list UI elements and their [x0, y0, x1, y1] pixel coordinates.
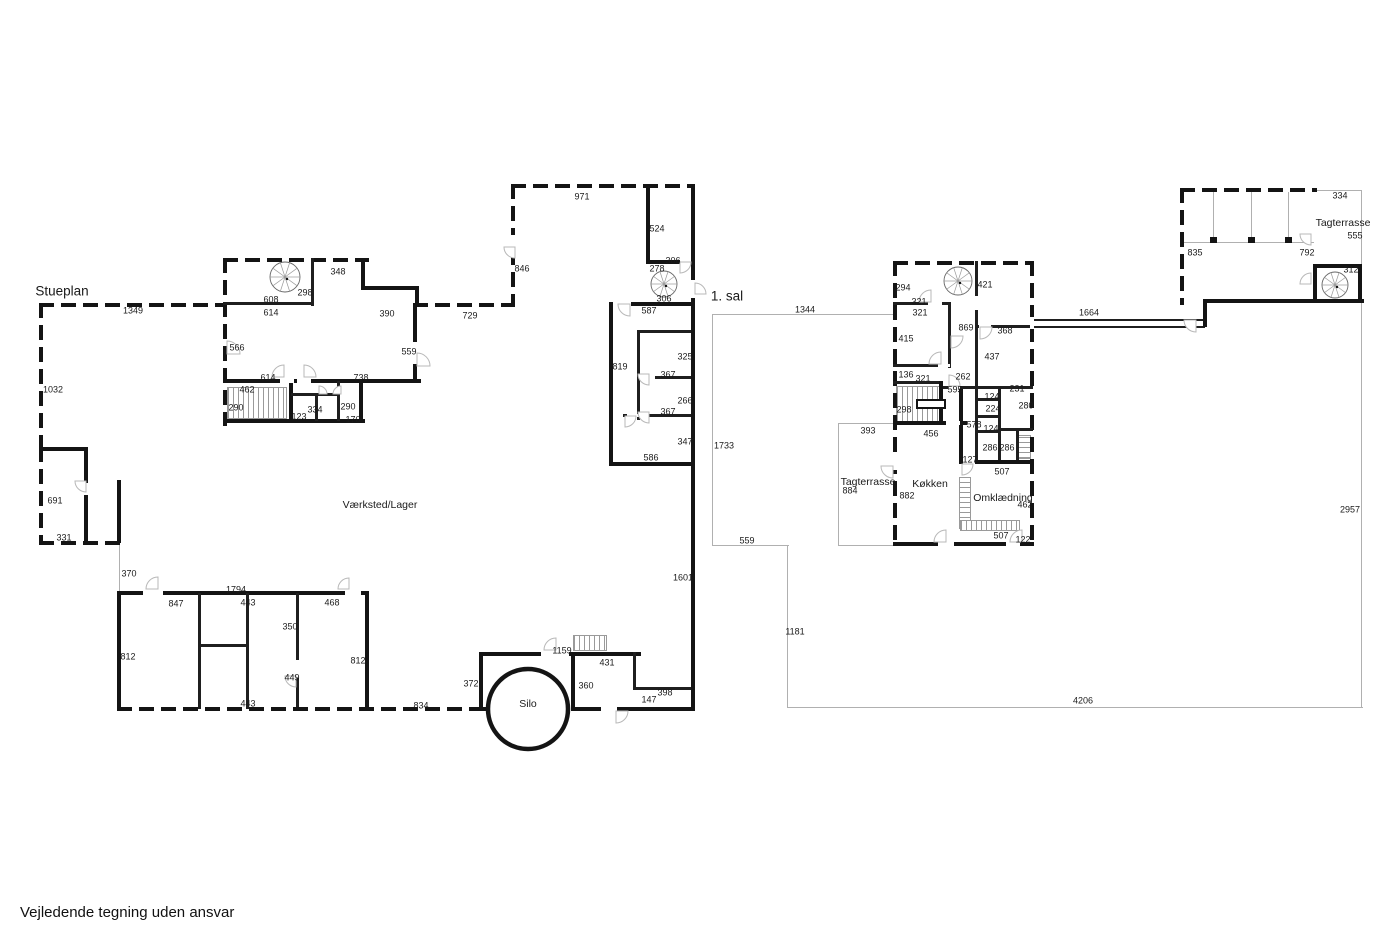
wall-segment [84, 447, 88, 483]
dimension-label: 136 [898, 371, 913, 380]
wall-opening [938, 364, 950, 367]
dimension-label: 306 [656, 295, 671, 304]
dimension-label: 350 [282, 623, 297, 632]
dimension-label: 566 [229, 344, 244, 353]
dimension-label: 278 [649, 265, 664, 274]
door-swing-icon [962, 464, 973, 475]
dimension-label: 1159 [552, 647, 571, 656]
interior-wall [948, 302, 951, 368]
dimension-label: 792 [1299, 249, 1314, 258]
dimension-label: 882 [899, 492, 914, 501]
dimension-label: 262 [955, 373, 970, 382]
wall-opening [627, 414, 641, 417]
dimension-label: 334 [1332, 192, 1347, 201]
dimension-label: 370 [121, 570, 136, 579]
boundary-line [838, 423, 896, 424]
dimension-label: 321 [912, 309, 927, 318]
dimension-label: 421 [977, 281, 992, 290]
wall-segment [571, 652, 575, 711]
dimension-label: 372 [463, 680, 478, 689]
interior-wall [633, 652, 636, 690]
dimension-label: 124 [984, 393, 999, 402]
interior-wall [637, 330, 693, 333]
dimension-label: 437 [984, 353, 999, 362]
staircase-treads [573, 635, 607, 651]
dimension-label: 286 [982, 444, 997, 453]
dimension-label: 834 [413, 702, 428, 711]
dimension-label: 812 [120, 653, 135, 662]
wall-segment [365, 591, 369, 711]
wall-segment [1210, 237, 1217, 243]
dimension-label: 1344 [795, 306, 815, 315]
wall-segment-dashed [413, 303, 515, 307]
stair-railing [916, 399, 946, 409]
dimension-label: 971 [574, 193, 589, 202]
dimension-label: 847 [168, 600, 183, 609]
dimension-label: 123 [291, 413, 306, 422]
spiral-stair-icon [270, 262, 300, 292]
wall-segment-dashed [39, 447, 43, 545]
dimension-label: 266 [677, 397, 692, 406]
room-label: Køkken [912, 479, 948, 490]
wall-opening [946, 421, 960, 425]
dimension-label: 280 [1018, 402, 1033, 411]
dimension-label: 846 [514, 265, 529, 274]
dimension-label: 360 [578, 682, 593, 691]
dimension-label: 507 [994, 468, 1009, 477]
dimension-label: 224 [985, 405, 1000, 414]
wall-segment [479, 652, 483, 711]
dimension-label: 614 [260, 374, 275, 383]
wall-segment [571, 707, 695, 711]
dimension-label: 1733 [714, 442, 734, 451]
dimension-label: 578 [966, 421, 981, 430]
dimension-label: 559 [739, 537, 754, 546]
door-swing-icon [980, 327, 992, 339]
wall-opening [938, 542, 954, 546]
dimension-label: 124 [983, 425, 998, 434]
wall-opening [928, 302, 942, 305]
dimension-label: 443 [240, 599, 255, 608]
dimension-label: 608 [263, 296, 278, 305]
door-swing-icon [338, 578, 349, 589]
wall-segment [1313, 264, 1317, 301]
disclaimer-text: Vejledende tegning uden ansvar [20, 904, 234, 921]
dimension-label: 127 [962, 456, 977, 465]
wall-segment [691, 306, 695, 711]
wall-segment [84, 495, 88, 545]
dimension-label: 586 [643, 454, 658, 463]
dimension-label: 1349 [123, 307, 143, 316]
dimension-label: 290 [340, 403, 355, 412]
wall-segment-dashed [39, 541, 123, 545]
wall-opening [975, 296, 978, 310]
interior-wall [975, 415, 1000, 418]
dimension-label: 170 [345, 416, 360, 425]
dimension-label: 2957 [1340, 506, 1360, 515]
wall-segment [1248, 237, 1255, 243]
dimension-label: 147 [641, 696, 656, 705]
spiral-stair-icon [944, 267, 972, 295]
wall-opening [601, 707, 617, 711]
dimension-label: 294 [895, 284, 910, 293]
wall-opening [511, 235, 515, 255]
interior-wall [1033, 326, 1205, 328]
dimension-label: 367 [660, 408, 675, 417]
wall-opening [143, 591, 163, 595]
dimension-label: 415 [898, 335, 913, 344]
boundary-line [838, 423, 839, 546]
wall-opening [893, 452, 897, 470]
dimension-label: 334 [307, 406, 322, 415]
wall-segment [223, 379, 421, 383]
wall-segment-dashed [223, 258, 369, 262]
dimension-label: 290 [228, 404, 243, 413]
door-swing-icon [695, 283, 706, 294]
boundary-line [1288, 192, 1289, 243]
dimension-label: 595 [947, 386, 962, 395]
plan-symbols-layer [0, 0, 1400, 933]
dimension-label: 835 [1187, 249, 1202, 258]
wall-segment [609, 302, 613, 466]
door-swing-icon [304, 365, 316, 377]
dimension-label: 321 [911, 298, 926, 307]
wall-segment [1285, 237, 1292, 243]
boundary-line [838, 545, 896, 546]
boundary-line [1213, 192, 1214, 243]
dimension-label: 443 [240, 700, 255, 709]
dimension-label: 298 [896, 406, 911, 415]
plan-title: 1. sal [711, 289, 743, 303]
dimension-label: 321 [915, 375, 930, 384]
dimension-label: 4206 [1073, 697, 1093, 706]
wall-segment-dashed [1180, 188, 1184, 305]
dimension-label: 819 [612, 363, 627, 372]
interior-wall [246, 593, 249, 709]
wall-opening [691, 280, 695, 298]
dimension-label: 347 [677, 438, 692, 447]
dimension-label: 231 [1009, 385, 1024, 394]
plan-title: Stueplan [35, 284, 88, 298]
boundary-line [1251, 192, 1252, 243]
dimension-label: 368 [997, 327, 1012, 336]
dimension-label: 393 [860, 427, 875, 436]
dimension-label: 1032 [43, 386, 63, 395]
interior-wall [1016, 430, 1019, 462]
wall-segment-dashed [223, 258, 227, 426]
dimension-label: 1181 [785, 628, 804, 637]
door-swing-icon [1300, 234, 1311, 245]
dimension-label: 398 [657, 689, 672, 698]
wall-segment [959, 386, 963, 464]
dimension-label: 312 [1343, 266, 1358, 275]
floorplan-canvas: Vejledende tegning uden ansvar 134910323… [0, 0, 1400, 933]
dimension-label: 449 [284, 674, 299, 683]
dimension-label: 286 [999, 444, 1014, 453]
boundary-line [712, 314, 713, 546]
door-swing-icon [417, 353, 430, 366]
interior-wall [291, 393, 337, 396]
boundary-line [787, 707, 1363, 708]
dimension-label: 390 [379, 310, 394, 319]
dimension-label: 555 [1347, 232, 1362, 241]
door-swing-icon [146, 577, 158, 589]
dimension-label: 456 [923, 430, 938, 439]
interior-wall [311, 258, 314, 306]
interior-wall [1033, 319, 1205, 321]
wall-segment-dashed [117, 707, 485, 711]
dimension-label: 884 [842, 487, 857, 496]
door-swing-icon [929, 352, 941, 364]
wall-opening [641, 376, 655, 379]
interior-wall [198, 593, 201, 709]
dimension-label: 1601 [673, 574, 693, 583]
door-swing-icon [616, 711, 628, 723]
wall-segment [1203, 299, 1364, 303]
dimension-label: 614 [263, 309, 278, 318]
wall-opening [979, 325, 991, 328]
dimension-label: 691 [47, 497, 62, 506]
wall-segment [609, 462, 693, 466]
wall-segment [117, 480, 121, 543]
dimension-label: 462 [239, 386, 254, 395]
wall-opening [297, 379, 311, 383]
dimension-label: 729 [462, 312, 477, 321]
room-label: Tagterrasse [1316, 218, 1371, 229]
room-label: Silo [519, 699, 537, 710]
dimension-label: 869 [958, 324, 973, 333]
dimension-label: 122 [1015, 536, 1030, 545]
dimension-label: 331 [56, 534, 71, 543]
staircase-treads [960, 520, 1020, 531]
dimension-label: 431 [599, 659, 614, 668]
interior-wall [637, 330, 640, 420]
dimension-label: 1664 [1079, 309, 1099, 318]
room-label: Værksted/Lager [343, 500, 418, 511]
room-label: Tagterrasse [841, 477, 896, 488]
door-swing-icon [951, 336, 963, 348]
dimension-label: 507 [993, 532, 1008, 541]
room-label: Omklædning [973, 493, 1033, 504]
dimension-label: 587 [641, 307, 656, 316]
dimension-label: 367 [660, 371, 675, 380]
wall-opening [1030, 317, 1034, 329]
dimension-label: 738 [353, 374, 368, 383]
door-swing-icon [625, 416, 636, 427]
wall-segment [361, 286, 419, 290]
door-swing-icon [680, 262, 691, 273]
wall-segment-dashed [511, 184, 695, 188]
boundary-line [1361, 299, 1362, 708]
dimension-label: 1794 [226, 586, 246, 595]
door-swing-icon [934, 530, 946, 542]
wall-opening [280, 379, 294, 383]
boundary-line [119, 543, 120, 593]
interior-wall [198, 644, 249, 647]
wall-segment-dashed [39, 303, 43, 449]
dimension-label: 325 [677, 353, 692, 362]
wall-opening [613, 302, 631, 306]
dimension-label: 559 [401, 348, 416, 357]
dimension-label: 468 [324, 599, 339, 608]
spiral-stair-icon [1322, 272, 1348, 298]
dimension-label: 524 [649, 225, 664, 234]
wall-segment-dashed [893, 261, 1034, 265]
dimension-label: 298 [297, 289, 312, 298]
dimension-label: 812 [350, 657, 365, 666]
wall-opening [345, 591, 361, 595]
wall-segment [1203, 299, 1207, 327]
wall-segment [39, 447, 87, 451]
wall-segment-dashed [1180, 188, 1317, 192]
dimension-label: 306 [665, 257, 680, 266]
interior-wall [296, 593, 299, 709]
dimension-label: 348 [330, 268, 345, 277]
door-swing-icon [1300, 273, 1311, 284]
wall-segment [1358, 264, 1362, 303]
